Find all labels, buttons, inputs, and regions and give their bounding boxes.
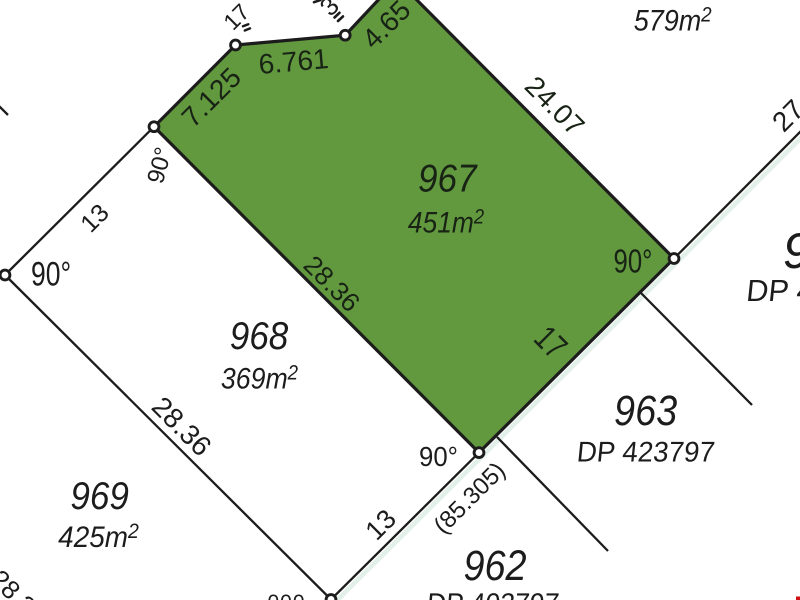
svg-text:579m2: 579m2 [634,4,712,38]
svg-text:90°: 90° [419,441,458,472]
svg-text:DP 423797: DP 423797 [575,436,716,467]
svg-text:451m2: 451m2 [408,205,484,239]
svg-text:962: 962 [463,542,526,590]
svg-text:969: 969 [70,473,129,517]
svg-text:967: 967 [418,156,478,200]
svg-text:90°: 90° [31,255,71,293]
svg-text:6.761: 6.761 [257,43,330,80]
svg-text:DP 42: DP 42 [745,274,800,308]
svg-text:96: 96 [783,223,800,279]
svg-text:963: 963 [614,387,678,435]
svg-text:968: 968 [230,313,289,357]
svg-text:90°: 90° [614,244,653,281]
svg-text:DP 403797: DP 403797 [425,587,560,600]
svg-text:369m2: 369m2 [221,362,298,396]
svg-text:425m2: 425m2 [58,520,139,554]
svg-text:000: 000 [267,591,305,600]
